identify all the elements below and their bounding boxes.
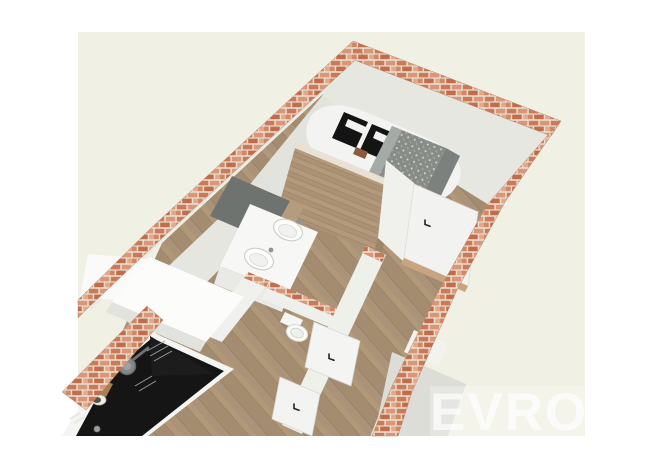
floorplan-render: EVROD xyxy=(0,0,662,468)
faucet-left xyxy=(269,248,274,253)
faucet-right xyxy=(298,219,303,224)
floorplan-screenshot: EVROD xyxy=(0,0,662,468)
hob-knob xyxy=(94,426,100,432)
watermark-text: EVROD xyxy=(430,383,628,442)
